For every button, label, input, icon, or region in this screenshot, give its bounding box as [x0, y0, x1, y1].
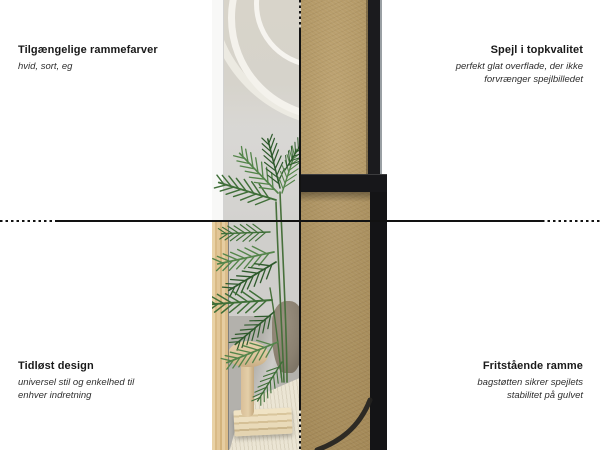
- feature-note-mirror-quality: Spejl i topkvalitet perfekt glat overfla…: [435, 44, 583, 86]
- feature-note-frame-colors: Tilgængelige rammefarver hvid, sort, eg: [18, 44, 203, 74]
- horizontal-divider-dotted-right: [542, 220, 600, 222]
- mirror-product-infographic: Tilgængelige rammefarver hvid, sort, eg …: [0, 0, 600, 450]
- feature-note-freestanding-frame: Fritstående ramme bagstøtten sikrer spej…: [455, 360, 583, 402]
- feature-note-timeless-design: Tidløst design universel stil og enkelhe…: [18, 360, 150, 402]
- feature-description: universel stil og enkelhed til enhver in…: [18, 377, 150, 402]
- horizontal-divider-dotted-left: [0, 220, 57, 222]
- cross-bar-shadow: [301, 192, 370, 202]
- mirror-front-view-photo: [212, 0, 301, 450]
- feature-title: Fritstående ramme: [455, 360, 583, 372]
- feature-description: bagstøtten sikrer spejlets stabilitet på…: [455, 377, 583, 402]
- feature-title: Spejl i topkvalitet: [435, 44, 583, 56]
- vertical-divider-dotted-top: [299, 0, 301, 28]
- black-frame-cross-bar: [301, 174, 387, 192]
- black-frame-side-bar: [368, 0, 380, 174]
- feature-title: Tidløst design: [18, 360, 150, 372]
- vertical-divider-dotted-bottom: [299, 408, 301, 450]
- mirror-back-view-photo: [301, 0, 387, 450]
- palm-plant-illustration: [212, 0, 301, 450]
- feature-description: perfekt glat overflade, der ikke forvræn…: [435, 61, 583, 86]
- feature-description: hvid, sort, eg: [18, 61, 203, 74]
- stand-leg-curve: [301, 388, 387, 450]
- background-gap: [382, 0, 387, 174]
- vertical-divider-line: [299, 28, 301, 408]
- feature-title: Tilgængelige rammefarver: [18, 44, 203, 56]
